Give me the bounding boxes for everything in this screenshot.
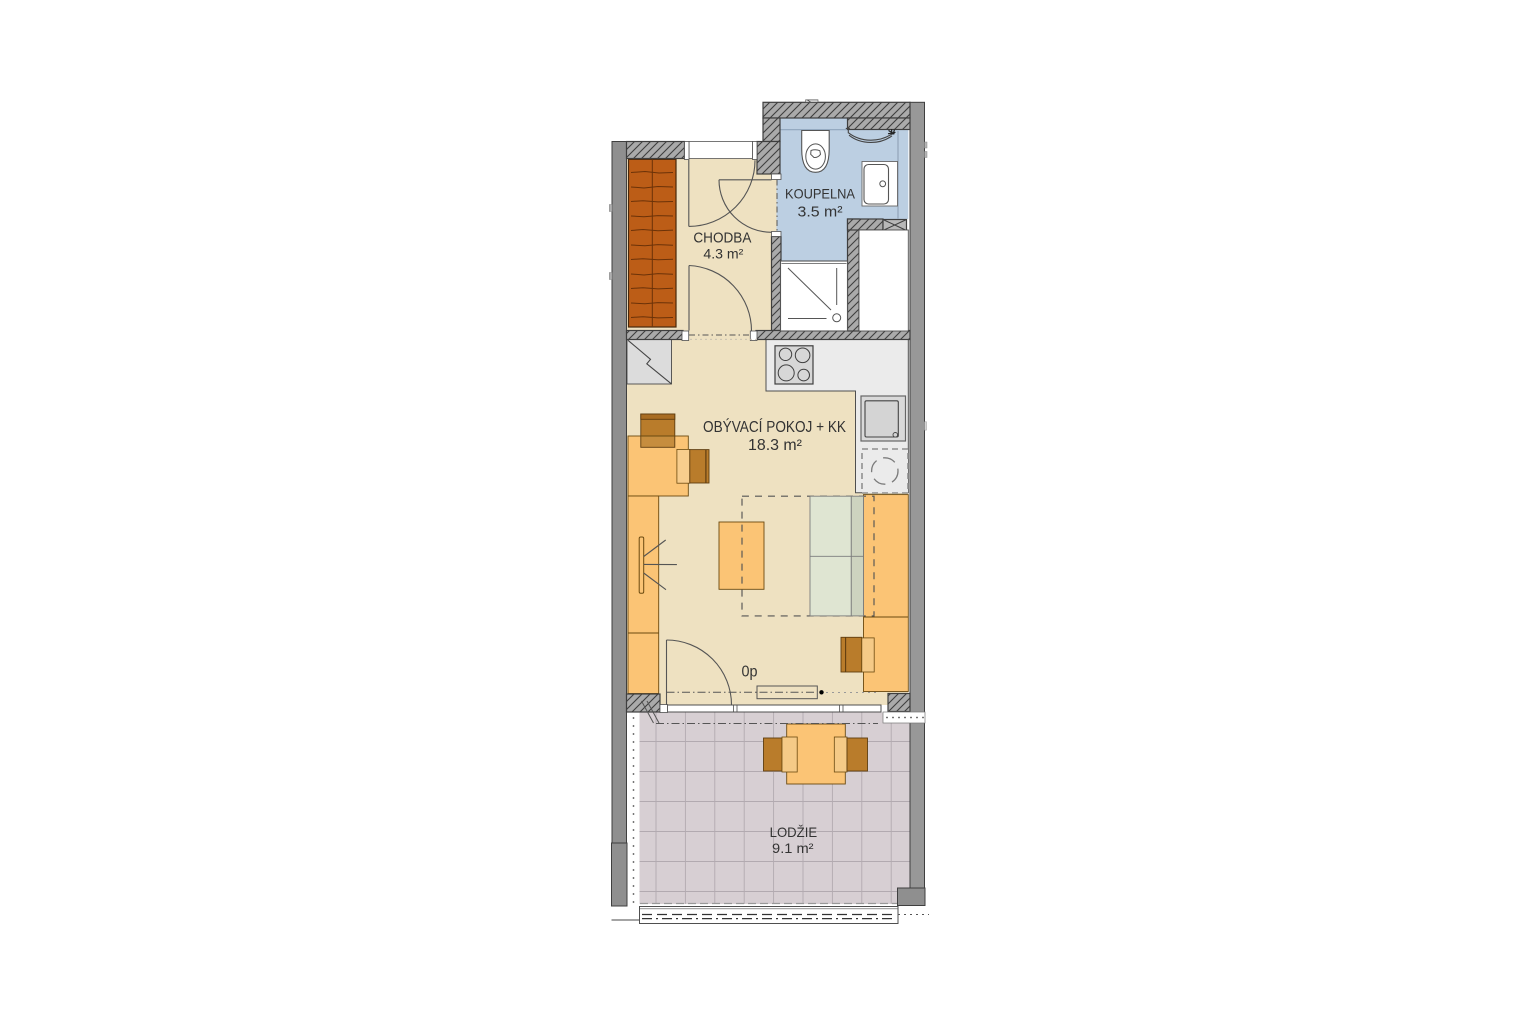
svg-text:18.3 m²: 18.3 m² <box>748 437 802 454</box>
svg-text:KOUPELNA: KOUPELNA <box>785 186 856 202</box>
svg-text:LODŽIE: LODŽIE <box>770 824 818 840</box>
svg-text:CHODBA: CHODBA <box>693 231 751 247</box>
svg-text:3.5 m²: 3.5 m² <box>798 204 843 221</box>
svg-text:4.3 m²: 4.3 m² <box>703 246 743 262</box>
svg-text:9.1 m²: 9.1 m² <box>772 840 814 856</box>
svg-text:0p: 0p <box>742 664 758 681</box>
svg-text:OBÝVACÍ POKOJ + KK: OBÝVACÍ POKOJ + KK <box>703 417 846 436</box>
